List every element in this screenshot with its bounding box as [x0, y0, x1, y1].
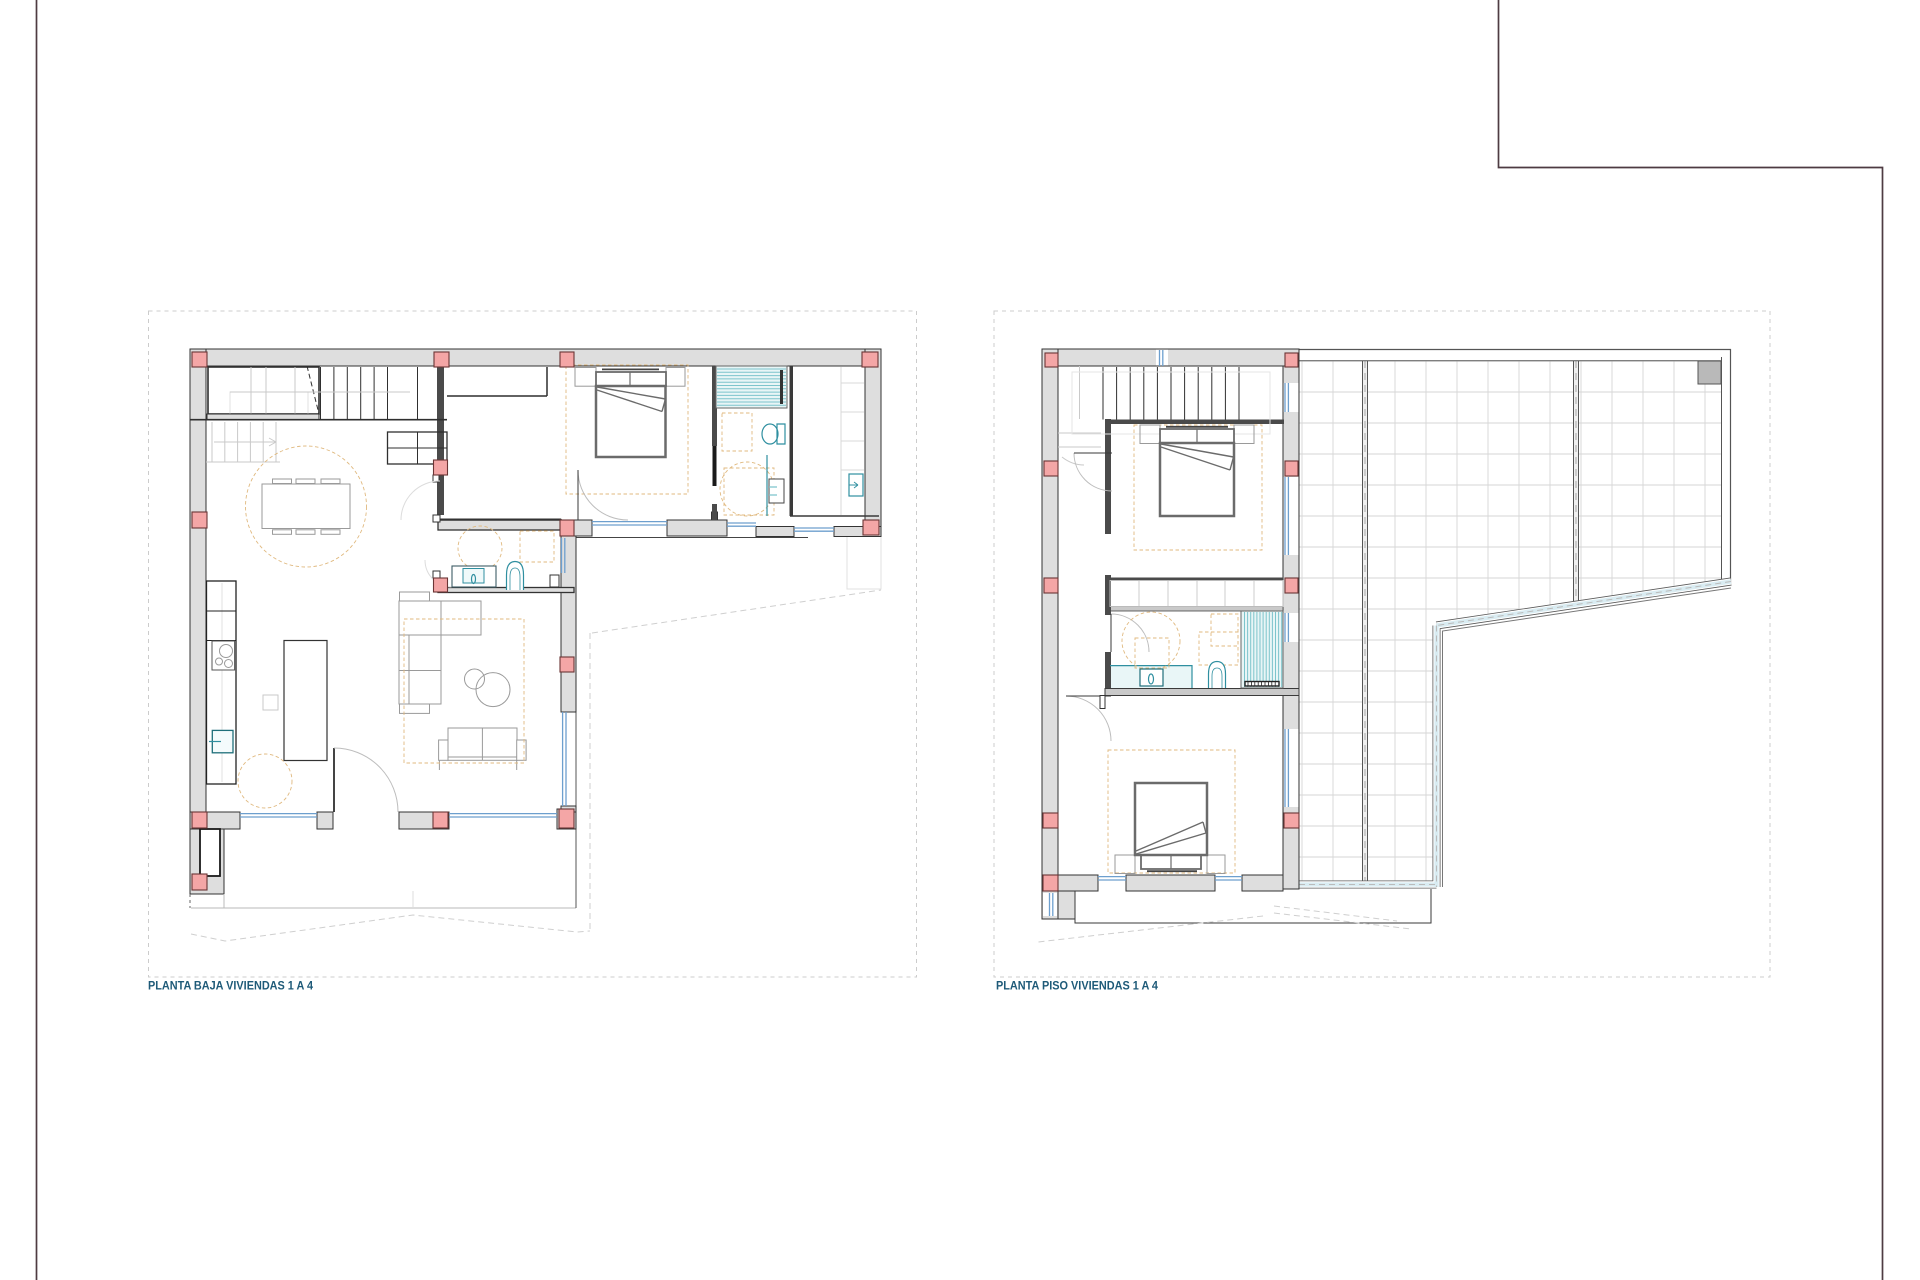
svg-text:PLANTA PISO VIVIENDAS 1 A 4: PLANTA PISO VIVIENDAS 1 A 4 — [996, 979, 1158, 993]
svg-text:PLANTA BAJA VIVIENDAS 1 A 4: PLANTA BAJA VIVIENDAS 1 A 4 — [148, 979, 313, 993]
